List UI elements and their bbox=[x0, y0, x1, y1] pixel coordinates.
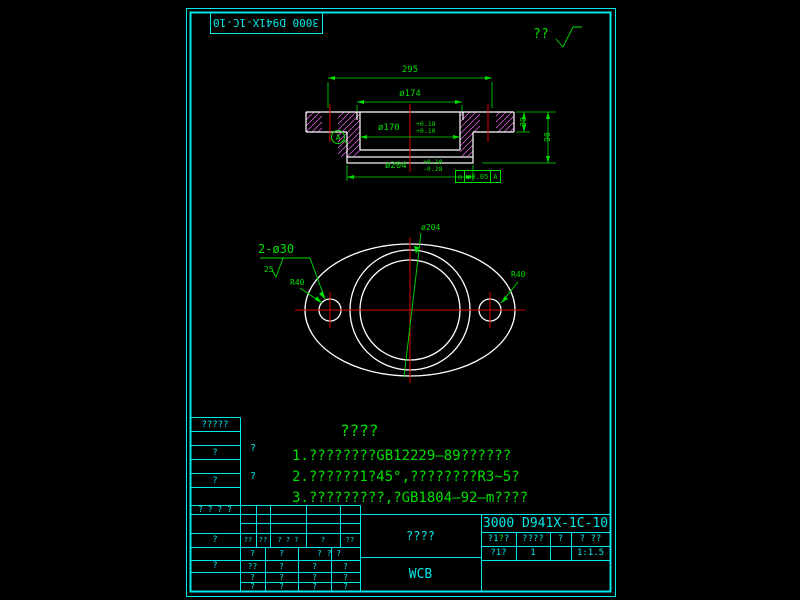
notes-line-2: 2.??????1?45°,????????R3~5? bbox=[292, 470, 520, 485]
titleblock-a-row4: ? bbox=[190, 560, 240, 572]
rev-header-2: ? ? ? bbox=[270, 533, 306, 547]
tb-r1-c2: ???? bbox=[516, 532, 550, 546]
notes-line-3: 3.?????????,?GB1804—92—m???? bbox=[292, 491, 528, 506]
dim-bolt-holes: 2-ø30 bbox=[258, 243, 294, 256]
part-name-cell: ???? bbox=[360, 514, 481, 557]
dim-thickness: 30 bbox=[517, 113, 529, 131]
titleblock-a-row2: ? bbox=[190, 533, 240, 547]
tb-r2-c2: 1 bbox=[516, 546, 550, 560]
titleblock-a-header: ? ? ? ? bbox=[190, 504, 240, 515]
dim-radius-right: R40 bbox=[511, 271, 525, 279]
roughness-value: 25 bbox=[264, 266, 274, 274]
tb-r1-c1: ?1?? bbox=[481, 532, 516, 546]
dim-dia174: ø174 bbox=[390, 88, 430, 99]
rev-sub-2: ? ? ? bbox=[298, 547, 360, 560]
dim-dia170: ø170 bbox=[378, 124, 400, 133]
plan-centerlines bbox=[295, 237, 525, 383]
dim-overall-width: 295 bbox=[390, 64, 430, 75]
tb-r2-c3 bbox=[550, 546, 571, 560]
dim-dia204: ø204 bbox=[385, 162, 407, 171]
rev-sub-1: ? bbox=[265, 547, 298, 560]
rev-r1-c3: ? bbox=[331, 572, 360, 582]
rev-r2-c2: ? bbox=[298, 582, 331, 591]
left-strip-row-title: ????? bbox=[190, 418, 240, 431]
plan-view bbox=[260, 27, 582, 383]
rev-header-1: ?? bbox=[256, 533, 270, 547]
rev-r0-c3: ? bbox=[331, 560, 360, 572]
tb-r1-c3: ? bbox=[550, 532, 571, 546]
rev-r0-c1: ? bbox=[265, 560, 298, 572]
field-mark-2: ? bbox=[250, 472, 256, 483]
dim-height: 90 bbox=[541, 128, 553, 146]
rev-header-4: ?? bbox=[340, 533, 360, 547]
tb-r2-c1: ?1? bbox=[481, 546, 516, 560]
dim-dia170-tolerance: +0.18+0.10 bbox=[416, 121, 436, 134]
rev-r2-c0: ? bbox=[240, 582, 265, 591]
field-mark-1: ? bbox=[250, 444, 256, 455]
material-cell: WCB bbox=[360, 557, 481, 591]
notes-line-1: 1.????????GB12229—89?????? bbox=[292, 449, 511, 464]
gdt-datum-ref: A bbox=[491, 171, 499, 182]
rev-r1-c1: ? bbox=[265, 572, 298, 582]
left-strip-row-2: ? bbox=[190, 446, 240, 459]
gdt-symbol: ◎ bbox=[456, 171, 465, 182]
rev-sub-0: ? bbox=[240, 547, 265, 560]
surface-finish-note: ?? bbox=[533, 28, 549, 42]
geometric-tolerance-frame: ◎ø0.05A bbox=[455, 170, 501, 183]
rev-r2-c1: ? bbox=[265, 582, 298, 591]
rev-r1-c2: ? bbox=[298, 572, 331, 582]
rev-header-0: ?? bbox=[240, 533, 256, 547]
datum-a-symbol: A bbox=[331, 130, 345, 144]
tb-r1-c4: ? ?? bbox=[571, 532, 610, 546]
drawing-number-cell: 3000 D941X-1C-10 bbox=[481, 514, 610, 532]
left-strip-row-4: ? bbox=[190, 474, 240, 487]
rev-r1-c0: ? bbox=[240, 572, 265, 582]
plan-leaders bbox=[260, 27, 582, 377]
cad-drawing-canvas: 3000 D941X-1C-10 ?? 295 ø174 ø170 +0.18+… bbox=[0, 0, 800, 600]
rotated-drawing-number: 3000 D941X-1C-10 bbox=[210, 13, 322, 33]
plan-arrowheads bbox=[315, 246, 508, 303]
tb-r1-c1-post: ? bbox=[504, 534, 509, 544]
rev-r2-c3: ? bbox=[331, 582, 360, 591]
datum-a-label: A bbox=[336, 133, 341, 142]
rev-r0-c2: ? bbox=[298, 560, 331, 572]
dim-dia204-plan: ø204 bbox=[421, 224, 440, 232]
tb-r2-c4: 1:1.5 bbox=[571, 546, 610, 560]
notes-title: ???? bbox=[340, 423, 379, 440]
tb-r1-c1-pre: ?1 bbox=[488, 534, 499, 544]
rev-r0-c0: ?? bbox=[240, 560, 265, 572]
rev-header-3: ? bbox=[306, 533, 340, 547]
dim-dia204-tolerance: +0.10-0.28 bbox=[423, 159, 443, 172]
dim-radius-left: R40 bbox=[290, 279, 304, 287]
gdt-tolerance: ø0.05 bbox=[465, 171, 491, 182]
